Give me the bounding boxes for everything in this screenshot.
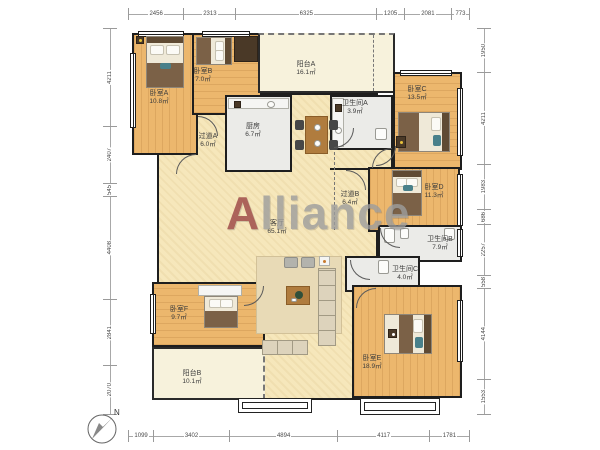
compass: N [84, 406, 126, 448]
room-area: 6.0㎡ [183, 141, 233, 149]
dimension-label: 6325 [299, 11, 314, 17]
armchair-icon [284, 257, 298, 268]
dimension-label: 1099 [133, 433, 148, 439]
bay-window [360, 398, 440, 415]
dimension-segment: 545 [103, 183, 117, 197]
room-label-bedroom-e: 卧室E18.9㎡ [345, 355, 399, 371]
dimension-segment: 4211 [103, 28, 117, 126]
dimension-segment: 1205 [376, 8, 404, 20]
room-area: 9.7㎡ [153, 314, 205, 322]
chair-icon [295, 140, 304, 150]
dimension-label: 4211 [481, 111, 487, 126]
bed-icon [196, 37, 232, 65]
dimension-segment: 4117 [337, 430, 428, 442]
room-name: 卧室F [153, 306, 205, 314]
window [400, 70, 452, 76]
room-area: 6.7㎡ [229, 131, 277, 139]
room-name: 阳台A [277, 61, 335, 69]
bed-icon [204, 296, 238, 328]
room-name: 卧室B [181, 68, 225, 76]
room-label-balcony-a: 阳台A16.1㎡ [277, 61, 335, 77]
dimension-label: 4117 [376, 433, 391, 439]
room-name: 卫生间B [412, 236, 468, 244]
dimension-label: 2070 [107, 382, 113, 397]
dimension-label: 1553 [481, 389, 487, 404]
room-name: 卧室D [406, 184, 462, 192]
dimension-chain-right: 195042111983686225755841441553 [477, 28, 491, 415]
dimension-label: 545 [107, 184, 113, 196]
kitchen-counter-icon [228, 98, 289, 109]
room-label-kitchen: 厨房6.7㎡ [229, 123, 277, 139]
dimension-label: 4894 [276, 433, 291, 439]
room-area: 16.1㎡ [277, 69, 335, 77]
dimension-chain-top: 24562313632512052081773 [128, 8, 470, 20]
dimension-segment: 2257 [477, 224, 491, 274]
dimension-segment: 6325 [235, 8, 376, 20]
dimension-chain-bottom: 10993402489441171781 [128, 430, 470, 442]
dimension-label: 2313 [202, 11, 217, 17]
room-label-hallway-a: 过道A6.0㎡ [183, 133, 233, 149]
armchair-icon [301, 257, 315, 268]
dimension-label: 1983 [481, 179, 487, 194]
dimension-segment: 1553 [477, 379, 491, 415]
compass-north-label: N [114, 408, 120, 417]
room-name: 过道A [183, 133, 233, 141]
dimension-segment: 1781 [429, 430, 470, 442]
bed-icon [146, 36, 184, 88]
room-name: 卧室A [133, 90, 185, 98]
dimension-label: 686 [481, 211, 487, 223]
dimension-label: 2407 [107, 147, 113, 162]
dimension-segment: 4144 [477, 288, 491, 379]
dimension-segment: 1099 [128, 430, 153, 442]
coffee-table-icon [286, 286, 310, 305]
room-label-bathroom-b: 卫生间B7.9㎡ [412, 236, 468, 252]
room-area: 10.1㎡ [166, 378, 218, 386]
balcony-boundary-dashed-line [373, 35, 374, 91]
floor-plan-page: 24562313632512052081773 1099340248944117… [0, 0, 600, 450]
chair-icon [295, 120, 304, 130]
dimension-label: 2081 [420, 11, 435, 17]
sofa-icon [318, 268, 336, 346]
dimension-label: 2841 [107, 325, 113, 340]
watermark-rest: lliance [260, 187, 410, 239]
wardrobe-icon [234, 36, 258, 62]
room-name: 卫生间C [378, 266, 432, 274]
room-label-bathroom-c: 卫生间C4.0㎡ [378, 266, 432, 282]
dimension-label: 4408 [107, 240, 113, 255]
toilet-icon [375, 128, 387, 140]
dimension-segment: 686 [477, 209, 491, 225]
dimension-segment: 2081 [404, 8, 451, 20]
dimension-chain-left: 42112407545440828412070 [103, 28, 117, 415]
room-label-bedroom-c: 卧室C13.5㎡ [388, 86, 446, 102]
room-label-bedroom-f: 卧室F9.7㎡ [153, 306, 205, 322]
room-label-balcony-b: 阳台B10.1㎡ [166, 370, 218, 386]
dimension-label: 2257 [481, 242, 487, 257]
dimension-label: 3402 [184, 433, 199, 439]
bed-icon [384, 314, 432, 354]
room-area: 11.3㎡ [406, 192, 462, 200]
dimension-segment: 2841 [103, 299, 117, 366]
room-area: 4.0㎡ [378, 274, 432, 282]
dimension-label: 4144 [481, 326, 487, 341]
room-area: 3.9㎡ [326, 108, 384, 116]
dimension-label: 1205 [383, 11, 398, 17]
side-table-icon [319, 256, 330, 266]
room-label-bathroom-a: 卫生间A3.9㎡ [326, 100, 384, 116]
dimension-label: 1781 [442, 433, 457, 439]
loveseat-icon [262, 340, 308, 355]
dining-table-icon [305, 116, 328, 154]
dimension-segment: 1950 [477, 28, 491, 72]
room-name: 卧室E [345, 355, 399, 363]
dimension-segment: 2407 [103, 126, 117, 183]
watermark-first-letter: A [226, 187, 260, 239]
dimension-segment: 773 [451, 8, 470, 20]
room-name: 阳台B [166, 370, 218, 378]
alliance-watermark: Alliance [226, 190, 410, 236]
room-label-bedroom-a: 卧室A10.8㎡ [133, 90, 185, 106]
dimension-segment: 558 [477, 275, 491, 288]
dimension-label: 2456 [148, 11, 163, 17]
dimension-label: 773 [454, 11, 466, 17]
window [457, 88, 463, 156]
room-area: 7.9㎡ [412, 244, 468, 252]
room-name: 厨房 [229, 123, 277, 131]
dimension-label: 4211 [107, 70, 113, 85]
room-area: 13.5㎡ [388, 94, 446, 102]
dimension-label: 558 [481, 276, 487, 288]
dimension-segment: 2456 [128, 8, 183, 20]
bay-window [238, 398, 312, 413]
dimension-segment: 1983 [477, 164, 491, 208]
dimension-segment: 4894 [229, 430, 338, 442]
room-name: 卧室C [388, 86, 446, 94]
dimension-segment: 3402 [153, 430, 229, 442]
dresser-icon [198, 285, 242, 296]
dimension-label: 1950 [481, 43, 487, 58]
window [457, 174, 463, 226]
dresser-icon [396, 136, 406, 148]
room-name: 卫生间A [326, 100, 384, 108]
room-area: 10.8㎡ [133, 98, 185, 106]
dimension-segment: 4408 [103, 196, 117, 299]
nightstand-icon [136, 36, 144, 44]
room-area: 7.0㎡ [181, 76, 225, 84]
room-label-bedroom-b: 卧室B7.0㎡ [181, 68, 225, 84]
window [457, 300, 463, 362]
dimension-segment: 4211 [477, 72, 491, 165]
room-label-bedroom-d: 卧室D11.3㎡ [406, 184, 462, 200]
dimension-segment: 2313 [183, 8, 235, 20]
room-area: 18.9㎡ [345, 363, 399, 371]
